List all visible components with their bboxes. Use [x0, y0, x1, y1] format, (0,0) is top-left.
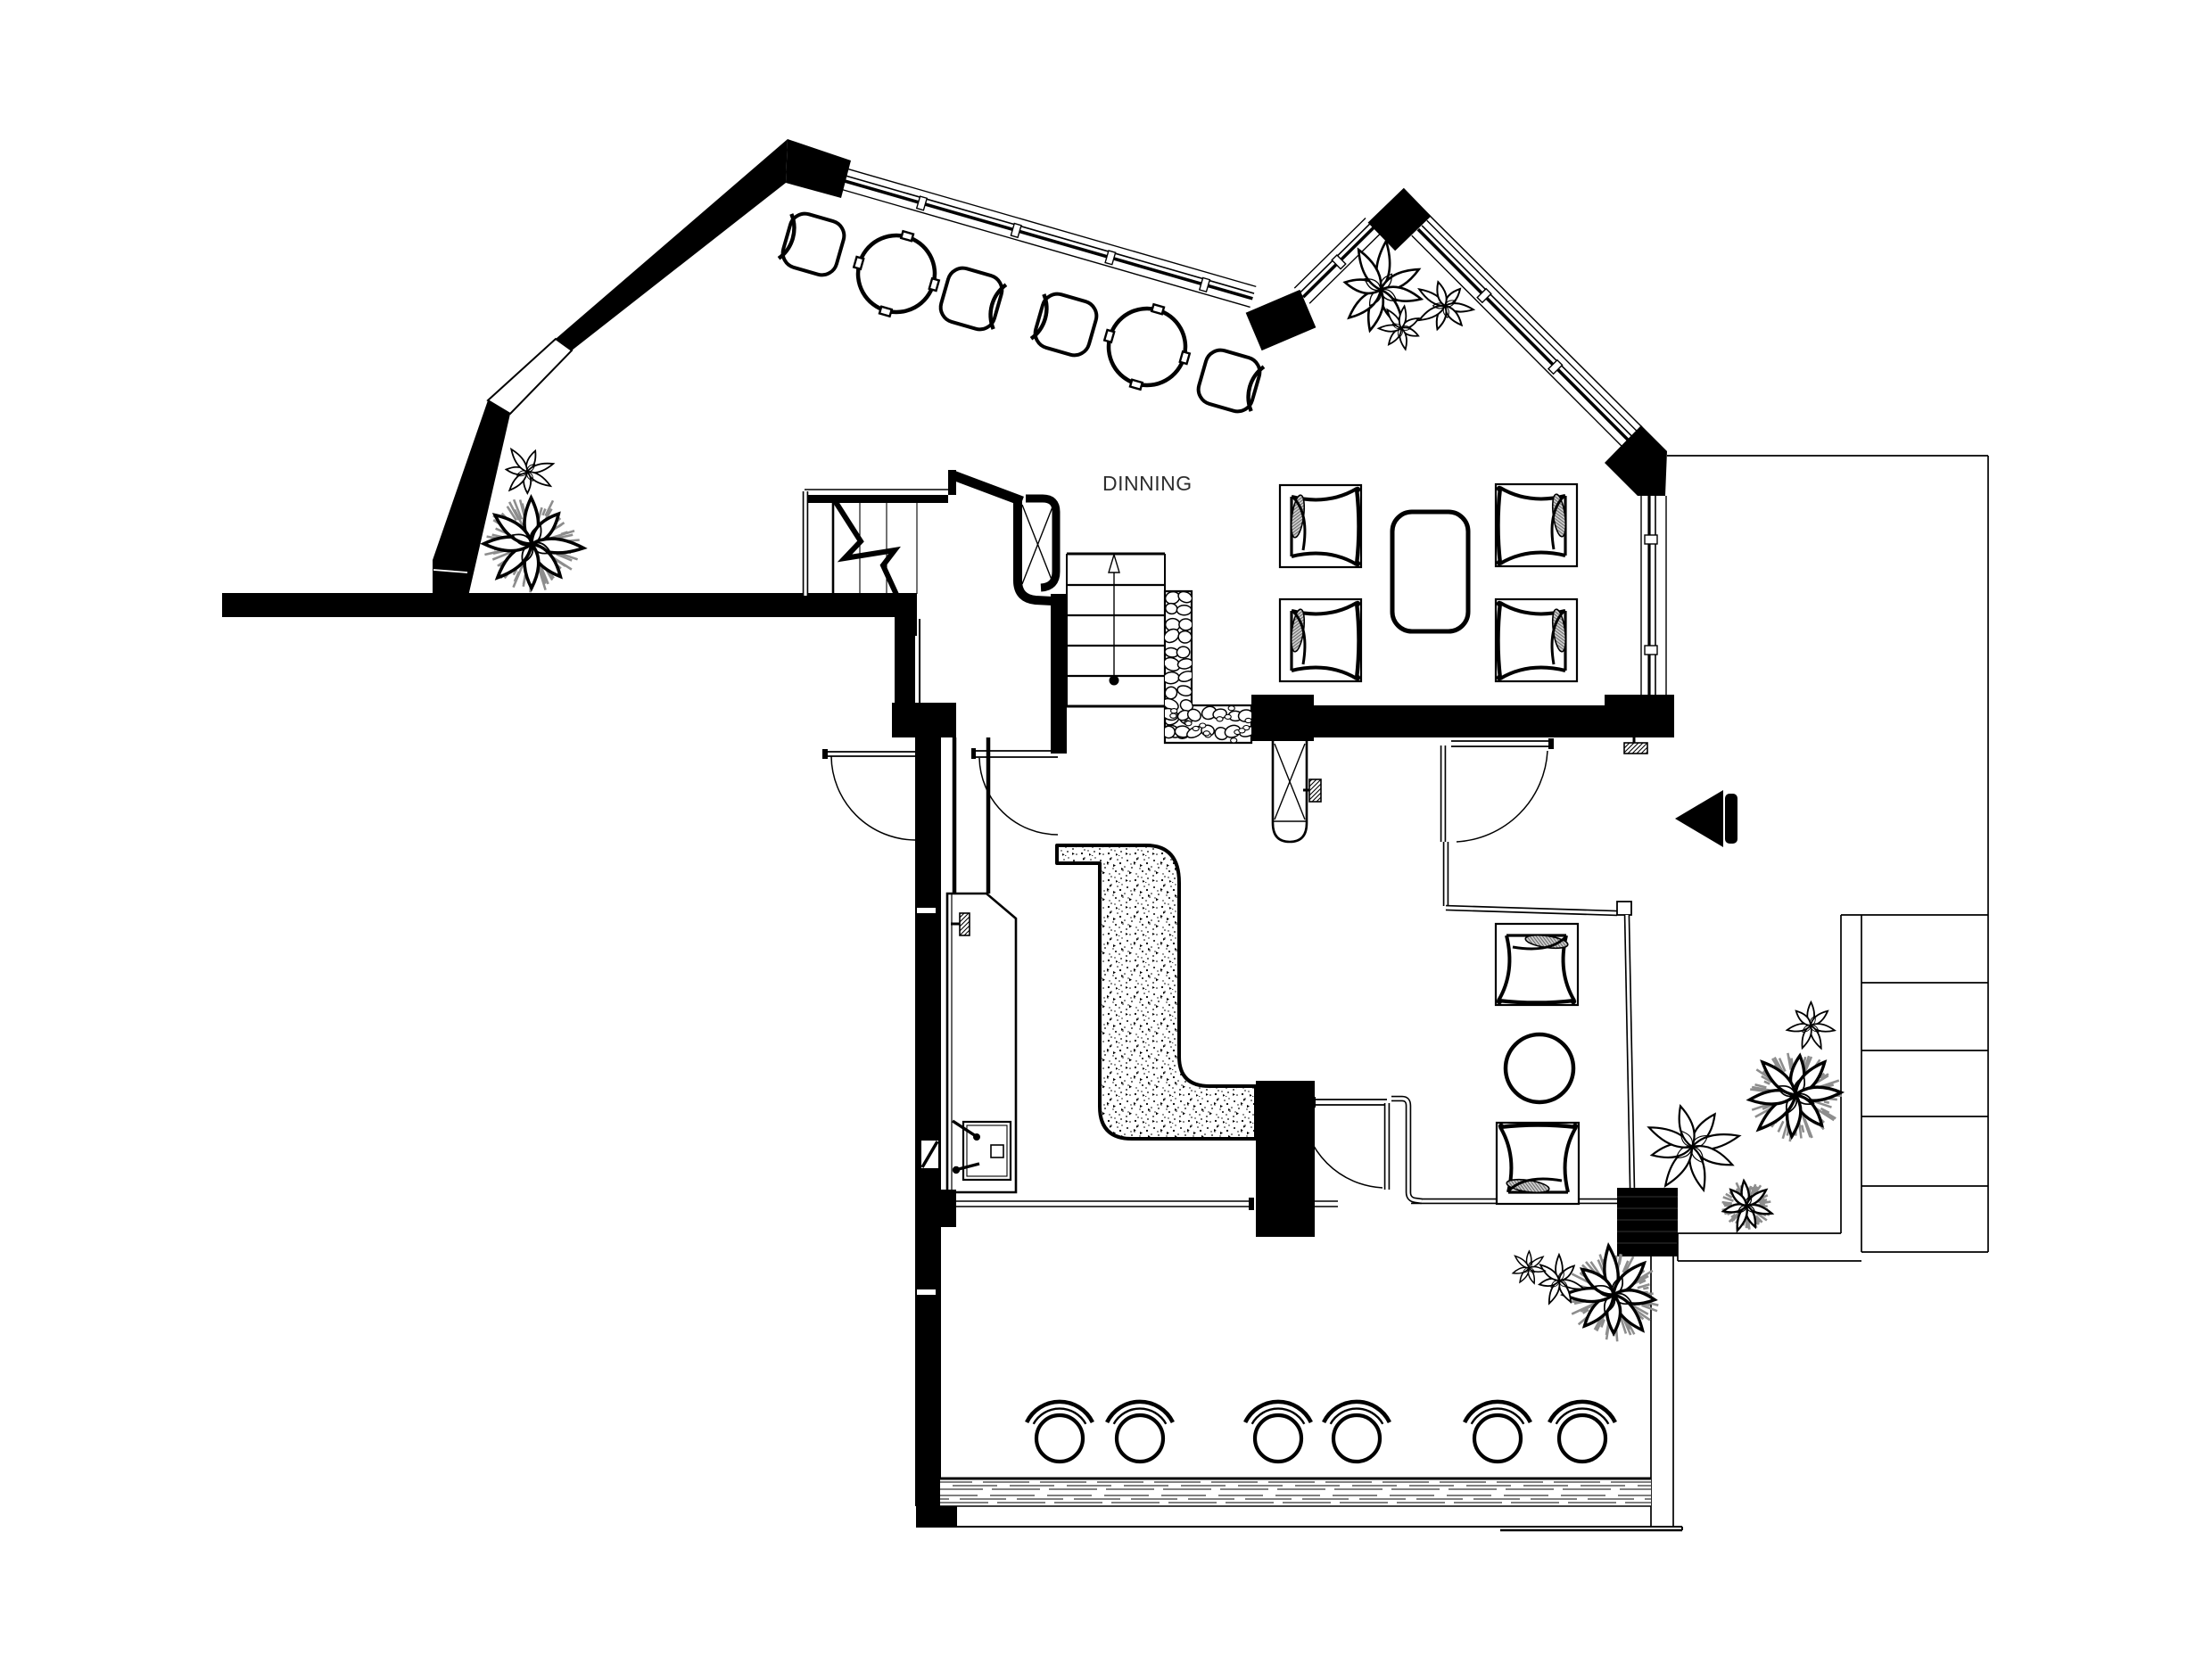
svg-text:DINNING: DINNING: [1102, 472, 1193, 495]
